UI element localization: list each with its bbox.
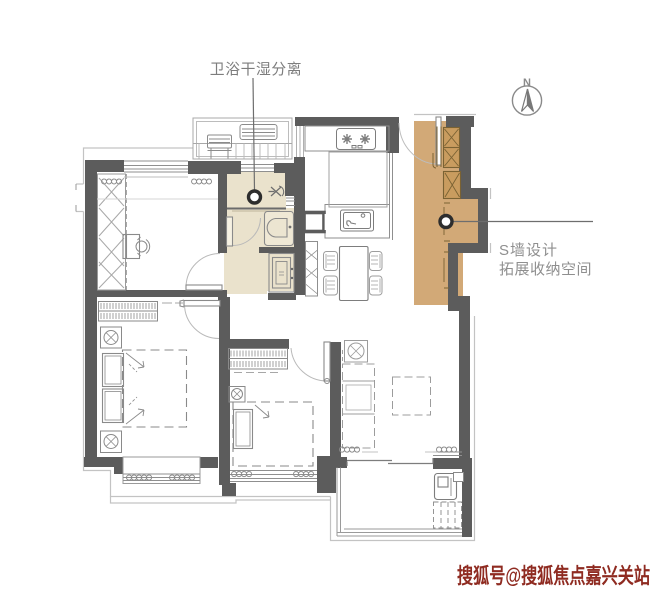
svg-text:卫浴干湿分离: 卫浴干湿分离 [210,61,302,78]
svg-text:拓展收纳空间: 拓展收纳空间 [499,261,592,278]
svg-text:搜狐号@搜狐焦点嘉兴关站: 搜狐号@搜狐焦点嘉兴关站 [457,564,650,588]
svg-text:S墙设计: S墙设计 [499,242,558,259]
svg-text:N: N [523,77,531,89]
